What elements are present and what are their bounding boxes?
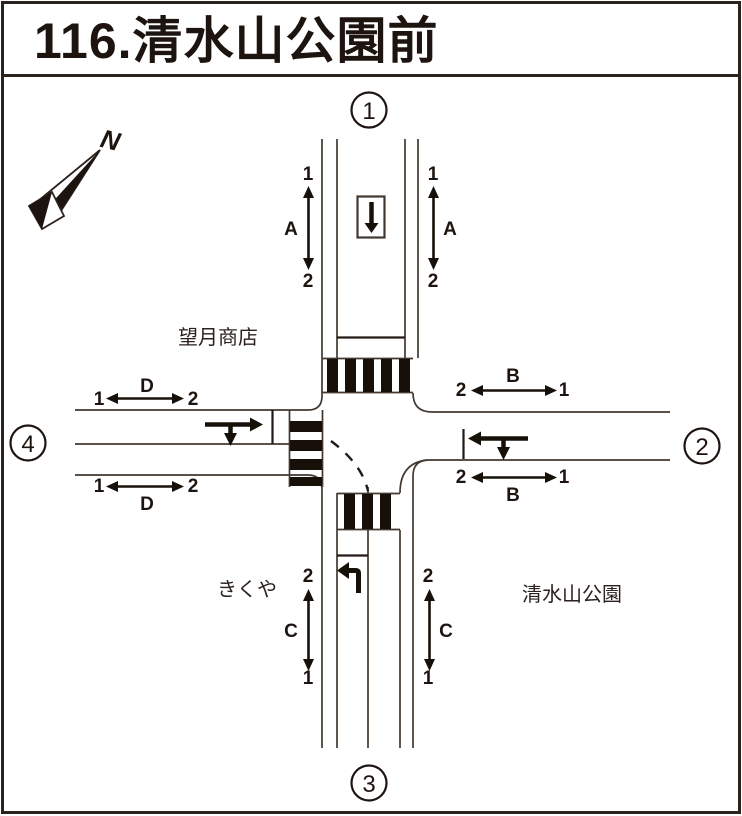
label-a-left-2: 2 bbox=[303, 271, 314, 292]
landmark-mochizuki-shoten: 望月商店 bbox=[178, 326, 258, 349]
approach-number-north: 1 bbox=[352, 93, 387, 128]
intersection-diagram-page: 116.清水山公園前 N bbox=[0, 0, 742, 816]
label-d-bottom-2: 2 bbox=[188, 476, 199, 497]
label-a-right-2: 2 bbox=[428, 271, 439, 292]
label-d-bottom: D bbox=[140, 494, 154, 515]
label-c-left-1: 1 bbox=[303, 668, 314, 689]
label-b-bottom-2: 2 bbox=[456, 467, 467, 488]
label-c-right-1: 1 bbox=[423, 668, 434, 689]
landmark-shimizuyama-park: 清水山公園 bbox=[522, 583, 622, 606]
label-d-top-1: 1 bbox=[94, 389, 105, 410]
label-b-bottom: B bbox=[506, 485, 520, 506]
approach-number-south: 3 bbox=[352, 766, 387, 801]
approach-number-west: 4 bbox=[11, 426, 46, 461]
approach-number-south-label: 3 bbox=[362, 771, 375, 798]
label-a-right: A bbox=[443, 219, 457, 240]
label-b-top-2: 2 bbox=[456, 380, 467, 401]
label-c-left: C bbox=[284, 621, 298, 642]
crosswalk-south bbox=[337, 494, 400, 530]
approach-number-north-label: 1 bbox=[362, 98, 375, 125]
label-d-bottom-1: 1 bbox=[94, 476, 105, 497]
label-a-left-1: 1 bbox=[303, 164, 314, 185]
label-a-left: A bbox=[284, 219, 298, 240]
label-b-top-1: 1 bbox=[559, 380, 570, 401]
label-b-top: B bbox=[506, 366, 520, 387]
label-d-top-2: 2 bbox=[188, 389, 199, 410]
label-d-top: D bbox=[140, 376, 154, 397]
label-c-right: C bbox=[439, 621, 453, 642]
page-title: 116.清水山公園前 bbox=[34, 13, 439, 69]
crosswalk-north bbox=[322, 359, 413, 393]
label-b-bottom-1: 1 bbox=[559, 467, 570, 488]
label-c-right-2: 2 bbox=[423, 566, 434, 587]
approach-number-west-label: 4 bbox=[21, 431, 34, 458]
approach-number-east-label: 2 bbox=[695, 434, 708, 461]
approach-number-east: 2 bbox=[685, 429, 720, 464]
landmark-kikuya: きくや bbox=[217, 579, 277, 601]
label-c-left-2: 2 bbox=[303, 566, 314, 587]
label-a-right-1: 1 bbox=[428, 164, 439, 185]
diagram-canvas: 116.清水山公園前 N bbox=[0, 0, 742, 816]
one-way-sign-north-icon bbox=[358, 197, 385, 238]
